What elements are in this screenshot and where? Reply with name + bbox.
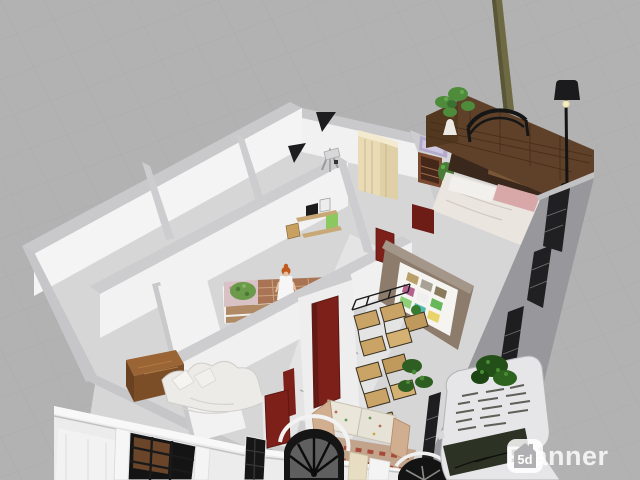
small-black-window[interactable]	[244, 436, 266, 480]
cream-wardrobe[interactable]	[358, 130, 398, 200]
planner5d-3d-viewport[interactable]: Planner 5d	[0, 0, 640, 480]
scene-3d-render[interactable]	[0, 0, 640, 480]
maroon-door-hallway[interactable]	[312, 296, 340, 408]
